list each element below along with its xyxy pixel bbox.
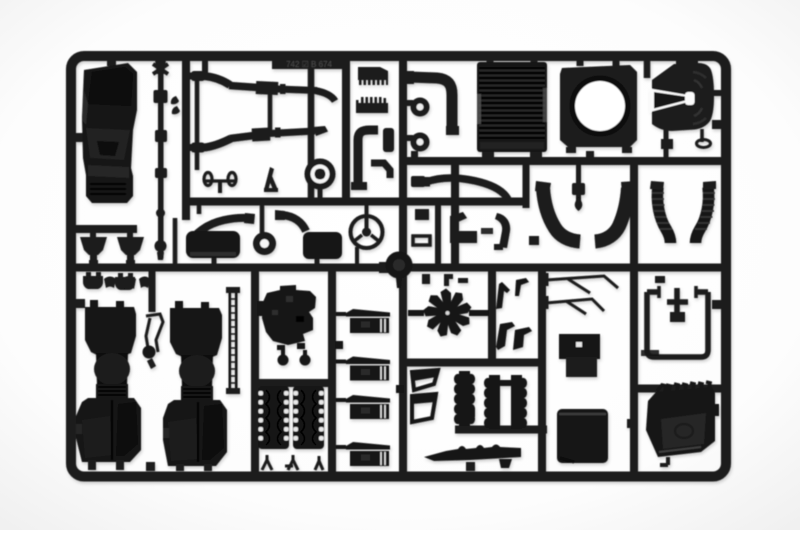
svg-text:742 ☑ B 674: 742 ☑ B 674: [286, 60, 332, 69]
